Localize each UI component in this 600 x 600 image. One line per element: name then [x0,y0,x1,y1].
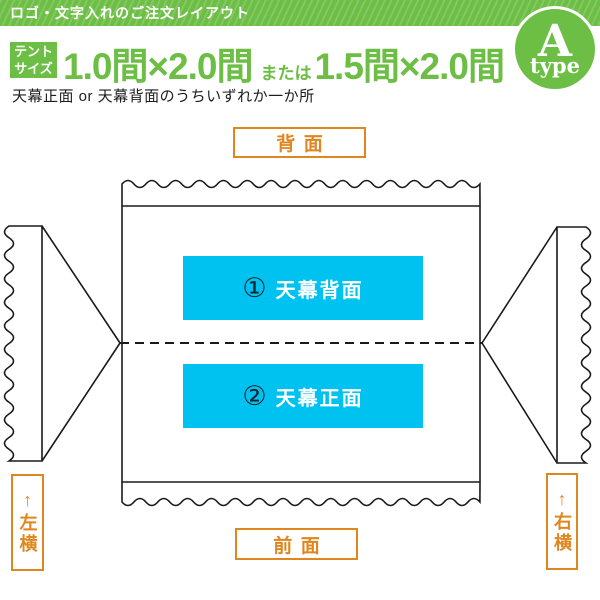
right-side-panel-outline [482,227,591,463]
tent-size-badge-line2: サイズ [10,60,57,77]
tent-size-badge-line1: テント [10,43,57,60]
print-area-1-number: ① [242,275,266,302]
left-side-panel-outline [5,226,121,461]
print-area-canopy-front: ② 天幕正面 [183,364,423,428]
tent-size-title: 1.0間×2.0間 または 1.5間×2.0間 [63,36,504,80]
print-area-canopy-back: ① 天幕背面 [183,256,423,320]
placement-note: 天幕正面 or 天幕背面のうちいずれか一か所 [12,85,315,106]
print-area-2-label: 天幕正面 [276,382,364,411]
size-option-1: 1.0間×2.0間 [63,36,252,90]
print-area-2-number: ② [242,383,266,410]
size-connector: または [260,59,311,84]
page-title: ロゴ・文字入れのご注文レイアウト [0,3,250,23]
back-face-label-text: 背面 [268,129,332,156]
right-side-label-text: ↑右横 [549,489,575,554]
title-banner: ロゴ・文字入れのご注文レイアウト [0,0,600,26]
type-word: type [530,55,580,76]
type-a-badge: A type [512,6,598,92]
left-side-label-text: ↑左横 [15,490,41,555]
front-face-label: 前面 [235,528,358,560]
print-area-1-label: 天幕背面 [276,274,364,303]
back-face-label: 背面 [233,127,366,158]
size-option-2: 1.5間×2.0間 [314,36,503,90]
right-side-label: ↑右横 [546,473,578,570]
front-face-label-text: 前面 [265,531,329,558]
tent-size-badge: テント サイズ [10,42,57,78]
left-side-label: ↑左横 [11,474,44,571]
